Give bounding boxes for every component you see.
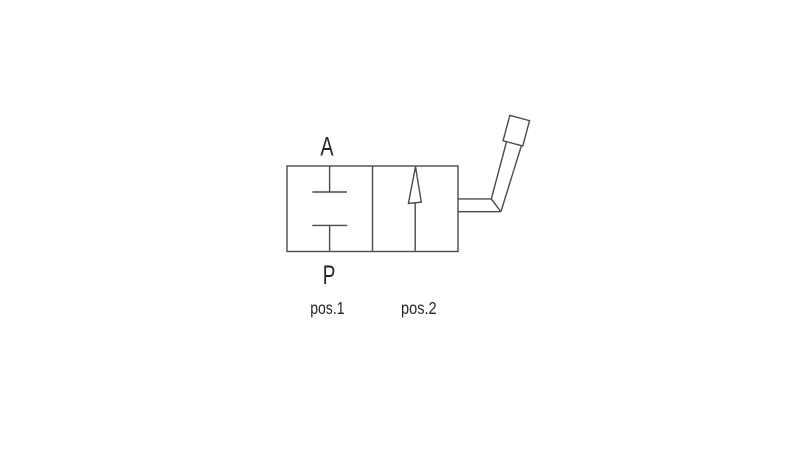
svg-text:pos.2: pos.2: [401, 299, 437, 319]
svg-text:P: P: [323, 260, 336, 290]
svg-text:A: A: [320, 133, 333, 163]
svg-text:pos.1: pos.1: [310, 299, 344, 319]
